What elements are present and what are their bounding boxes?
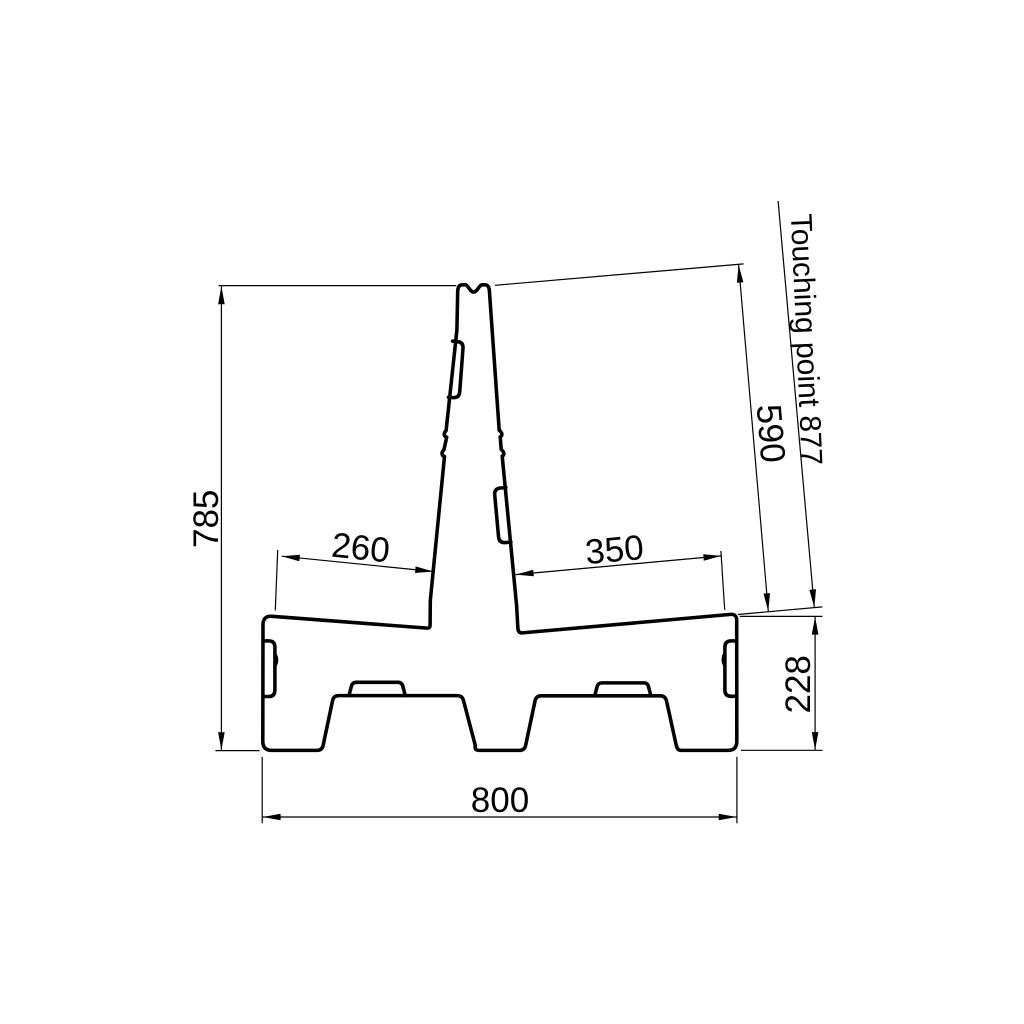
svg-text:350: 350 — [584, 528, 646, 572]
svg-text:785: 785 — [187, 490, 226, 548]
svg-text:228: 228 — [779, 655, 818, 713]
svg-text:590: 590 — [749, 403, 793, 465]
svg-text:800: 800 — [471, 781, 529, 820]
svg-text:260: 260 — [330, 526, 392, 571]
